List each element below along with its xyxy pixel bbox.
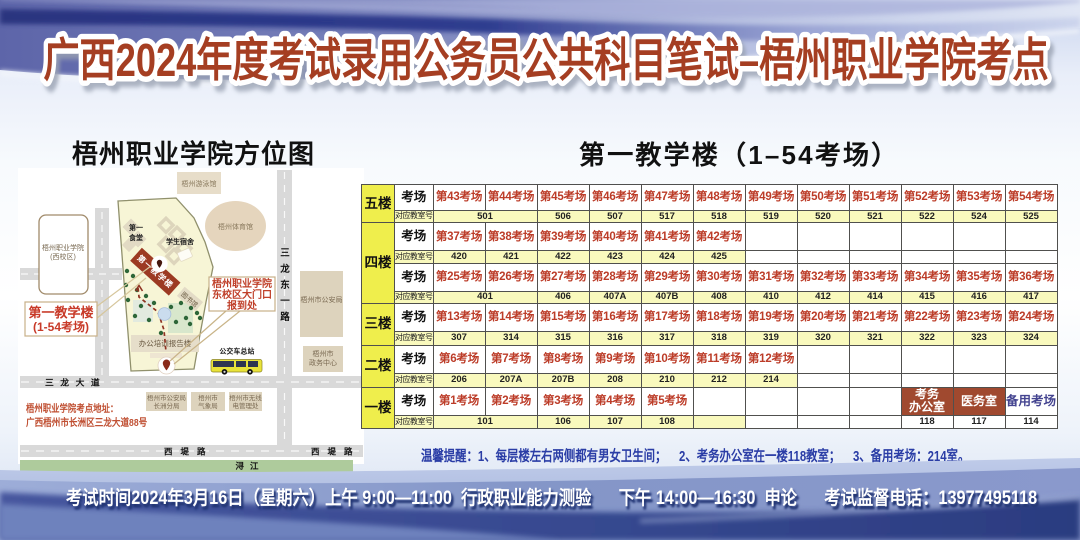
svg-text:(西校区): (西校区) [50, 252, 76, 261]
svg-text:龙: 龙 [279, 263, 290, 275]
svg-text:一: 一 [280, 296, 290, 307]
svg-text:路: 路 [280, 311, 290, 323]
svg-text:东: 东 [280, 279, 290, 291]
svg-text:(1-54考场): (1-54考场) [33, 319, 89, 334]
svg-text:三龙大道: 三龙大道 [45, 377, 106, 388]
svg-text:学生宿舍: 学生宿舍 [166, 237, 195, 246]
svg-text:梧州职业学院考点地址：: 梧州职业学院考点地址： [26, 402, 118, 414]
svg-text:梧州游泳馆: 梧州游泳馆 [182, 179, 217, 188]
svg-text:食堂: 食堂 [128, 233, 143, 242]
svg-text:梧州市公安局: 梧州市公安局 [147, 393, 186, 402]
svg-text:报到处: 报到处 [227, 299, 258, 312]
svg-text:梧州体育馆: 梧州体育馆 [218, 222, 253, 231]
svg-text:第一教学楼: 第一教学楼 [28, 305, 93, 320]
svg-text:长洲分局: 长洲分局 [154, 401, 180, 410]
svg-text:第一: 第一 [129, 223, 143, 232]
svg-text:东校区大门口: 东校区大门口 [212, 288, 272, 301]
svg-text:梧州市: 梧州市 [198, 393, 218, 402]
svg-text:广西梧州市长洲区三龙大道88号: 广西梧州市长洲区三龙大道88号 [26, 416, 147, 428]
svg-text:梧州职业学院: 梧州职业学院 [212, 277, 272, 290]
svg-text:梧州市公安局: 梧州市公安局 [301, 295, 343, 304]
svg-text:气象局: 气象局 [198, 401, 218, 410]
svg-text:梧州职业学院: 梧州职业学院 [42, 243, 84, 252]
svg-text:电管理处: 电管理处 [233, 401, 260, 410]
svg-text:公交车总站: 公交车总站 [220, 347, 255, 356]
svg-text:梧州市无线: 梧州市无线 [229, 393, 262, 402]
svg-text:梧州市: 梧州市 [313, 349, 334, 358]
svg-text:政务中心: 政务中心 [309, 358, 337, 367]
svg-text:三: 三 [280, 248, 290, 259]
